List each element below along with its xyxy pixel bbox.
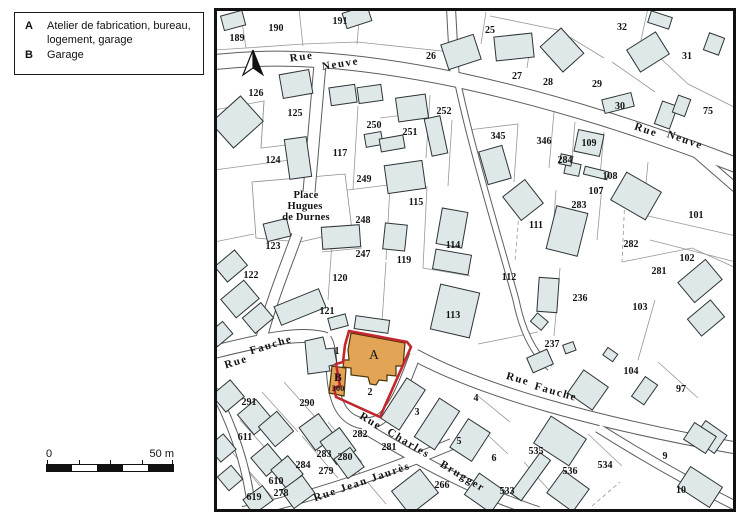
parcel-label-102: 102 bbox=[680, 253, 695, 264]
parcel-label-121: 121 bbox=[320, 306, 335, 317]
building bbox=[329, 84, 357, 105]
parcel-label-248: 248 bbox=[356, 215, 371, 226]
scale-bar-graphic bbox=[46, 464, 174, 472]
parcel-label-535: 535 bbox=[529, 446, 544, 457]
legend-label-b: Garage bbox=[47, 49, 195, 63]
label-building-a: A bbox=[369, 347, 379, 362]
parcel-label-114: 114 bbox=[446, 240, 460, 251]
building bbox=[494, 33, 534, 61]
parcel-boundary-line bbox=[261, 101, 264, 148]
building bbox=[383, 223, 408, 251]
building bbox=[354, 316, 389, 334]
parcel-label-27: 27 bbox=[512, 71, 522, 82]
parcel-boundary-line bbox=[214, 42, 451, 52]
parcel-label-191: 191 bbox=[333, 16, 348, 27]
scale-labels: 0 50 m bbox=[46, 448, 174, 460]
building bbox=[687, 300, 724, 336]
parcel-label-109: 109 bbox=[582, 138, 597, 149]
parcel-label-345: 345 bbox=[491, 131, 506, 142]
parcel-label-281: 281 bbox=[652, 266, 667, 277]
parcel-boundary-line bbox=[382, 262, 386, 322]
parcel-boundary-line bbox=[299, 9, 303, 46]
parcel-label-104: 104 bbox=[624, 366, 639, 377]
street-label-place: Place bbox=[294, 190, 319, 201]
parcel-label-6: 6 bbox=[492, 453, 497, 464]
parcel-label-115: 115 bbox=[409, 197, 423, 208]
parcel-label-279: 279 bbox=[319, 466, 334, 477]
parcel-label-619: 619 bbox=[247, 492, 262, 503]
building bbox=[530, 313, 548, 330]
parcel-label-10: 10 bbox=[676, 485, 686, 496]
parcel-label-190: 190 bbox=[269, 23, 284, 34]
parcel-label-250: 250 bbox=[367, 120, 382, 131]
parcel-label-26: 26 bbox=[426, 51, 436, 62]
legend-label-a: Atelier de fabrication, bureau, logement… bbox=[47, 20, 195, 47]
parcel-label-120: 120 bbox=[333, 273, 348, 284]
parcel-label-249: 249 bbox=[357, 174, 372, 185]
parcel-boundary-line bbox=[328, 242, 332, 300]
building bbox=[511, 453, 551, 501]
parcel-label-111: 111 bbox=[529, 220, 543, 231]
parcel-label-610: 610 bbox=[269, 476, 284, 487]
parcel-label-236: 236 bbox=[573, 293, 588, 304]
street-label-de-durnes: de Durnes bbox=[282, 212, 330, 223]
parcel-label-97: 97 bbox=[676, 384, 686, 395]
parcel-label-4: 4 bbox=[474, 393, 479, 404]
parcel-label-103: 103 bbox=[633, 302, 648, 313]
parcel-label-291: 291 bbox=[242, 397, 257, 408]
parcel-label-536: 536 bbox=[563, 466, 578, 477]
cadastral-map-page: A Atelier de fabrication, bureau, logeme… bbox=[0, 0, 738, 522]
building bbox=[563, 342, 576, 354]
building bbox=[540, 28, 584, 72]
building bbox=[433, 249, 472, 275]
building bbox=[527, 349, 554, 373]
parcel-label-346: 346 bbox=[537, 136, 552, 147]
parcel-label-284: 284 bbox=[296, 460, 311, 471]
parcel-label-281: 281 bbox=[382, 442, 397, 453]
parcel-label-284: 284 bbox=[558, 155, 573, 166]
parcel-label-534: 534 bbox=[598, 460, 613, 471]
scale-bar: 0 50 m bbox=[46, 448, 174, 472]
parcel-boundary-line bbox=[478, 396, 510, 422]
building bbox=[214, 96, 263, 148]
parcel-label-32: 32 bbox=[617, 22, 627, 33]
parcel-label-25: 25 bbox=[485, 25, 495, 36]
building bbox=[611, 172, 662, 220]
legend-key-b: B bbox=[25, 49, 47, 63]
parcel-label-189: 189 bbox=[230, 33, 245, 44]
parcel-label-290: 290 bbox=[300, 398, 315, 409]
parcel-label-112: 112 bbox=[502, 272, 516, 283]
building bbox=[627, 32, 670, 72]
parcel-label-107: 107 bbox=[589, 186, 604, 197]
parcel-label-2: 2 bbox=[368, 387, 373, 398]
parcel-label-29: 29 bbox=[592, 79, 602, 90]
parcel-label-117: 117 bbox=[333, 148, 347, 159]
parcel-boundary-line bbox=[214, 234, 254, 242]
parcel-label-252: 252 bbox=[437, 106, 452, 117]
parcel-label-280: 280 bbox=[338, 452, 353, 463]
parcel-label-31: 31 bbox=[682, 51, 692, 62]
street-label-hugues: Hugues bbox=[287, 201, 322, 212]
parcel-label-123: 123 bbox=[266, 241, 281, 252]
building bbox=[217, 465, 242, 490]
building bbox=[274, 289, 326, 326]
parcel-label-611: 611 bbox=[238, 432, 252, 443]
building bbox=[279, 70, 313, 99]
building bbox=[357, 84, 383, 103]
building bbox=[678, 259, 722, 302]
building bbox=[632, 377, 658, 405]
parcel-label-282: 282 bbox=[624, 239, 639, 250]
building bbox=[384, 160, 426, 193]
parcel-label-101: 101 bbox=[689, 210, 704, 221]
parcel-label-119: 119 bbox=[397, 255, 411, 266]
parcel-label-278: 278 bbox=[274, 488, 289, 499]
building bbox=[441, 34, 481, 69]
parcel-label-237: 237 bbox=[545, 339, 560, 350]
building bbox=[603, 347, 618, 361]
legend-key-a: A bbox=[25, 20, 47, 47]
building bbox=[654, 101, 677, 129]
legend-box: A Atelier de fabrication, bureau, logeme… bbox=[14, 12, 204, 75]
legend-row-b: B Garage bbox=[25, 49, 195, 63]
parcel-label-533: 533 bbox=[500, 486, 515, 497]
building bbox=[703, 33, 724, 55]
label-house-number: 300 bbox=[332, 383, 345, 393]
building bbox=[321, 225, 360, 250]
building bbox=[221, 10, 246, 30]
building bbox=[395, 94, 428, 122]
street-label-rue: Rue bbox=[505, 370, 531, 388]
scale-end: 50 m bbox=[150, 448, 174, 460]
scale-start: 0 bbox=[46, 448, 52, 460]
parcel-label-247: 247 bbox=[356, 249, 371, 260]
parcel-label-3: 3 bbox=[415, 407, 420, 418]
parcel-label-125: 125 bbox=[288, 108, 303, 119]
parcel-label-9: 9 bbox=[663, 451, 668, 462]
parcel-label-75: 75 bbox=[703, 106, 713, 117]
parcel-label-282: 282 bbox=[353, 429, 368, 440]
building bbox=[379, 135, 405, 152]
parcel-label-108: 108 bbox=[603, 171, 618, 182]
parcel-label-30: 30 bbox=[615, 101, 625, 112]
parcel-label-283: 283 bbox=[317, 449, 332, 460]
parcel-label-124: 124 bbox=[266, 155, 281, 166]
parcel-label-126: 126 bbox=[249, 88, 264, 99]
building bbox=[648, 11, 673, 29]
building bbox=[503, 180, 544, 221]
building bbox=[215, 250, 248, 282]
parcel-label-122: 122 bbox=[244, 270, 259, 281]
parcel-label-5: 5 bbox=[457, 436, 462, 447]
parcel-label-113: 113 bbox=[446, 310, 460, 321]
building bbox=[537, 277, 559, 312]
parcel-boundary-line bbox=[448, 120, 452, 186]
building bbox=[546, 206, 588, 256]
parcel-label-251: 251 bbox=[403, 127, 418, 138]
legend-row-a: A Atelier de fabrication, bureau, logeme… bbox=[25, 20, 195, 47]
parcel-label-266: 266 bbox=[435, 480, 450, 491]
map-canvas: A B 300 18919019125262728293031327512612… bbox=[214, 8, 736, 512]
parcel-label-283: 283 bbox=[572, 200, 587, 211]
building bbox=[424, 116, 448, 156]
parcel-label-28: 28 bbox=[543, 77, 553, 88]
parcel-label-1: 1 bbox=[335, 346, 340, 357]
building bbox=[672, 95, 690, 116]
parcel-boundary-line bbox=[592, 482, 620, 506]
